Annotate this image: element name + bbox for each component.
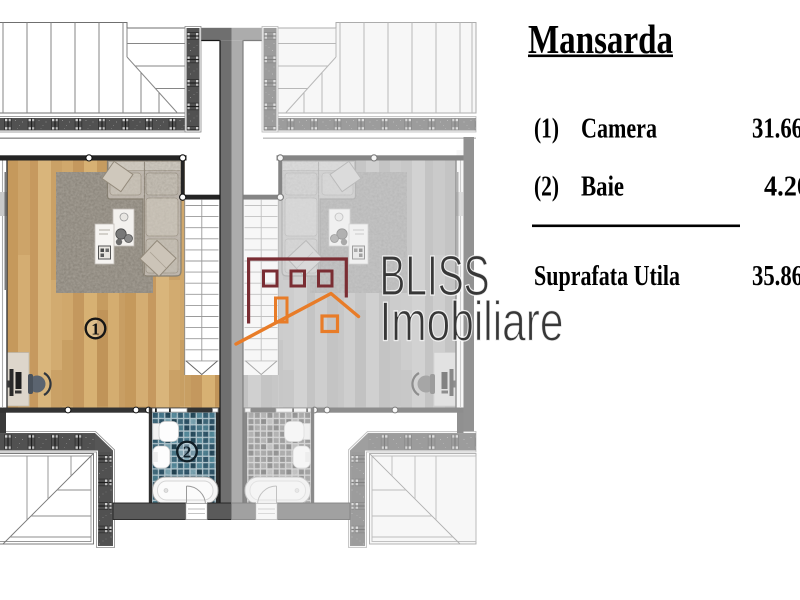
svg-text:35.86: 35.86 — [752, 260, 800, 292]
svg-text:2: 2 — [183, 443, 192, 462]
svg-text:Camera: Camera — [581, 113, 657, 145]
svg-text:Imobiliare: Imobiliare — [380, 290, 564, 353]
svg-text:1: 1 — [91, 320, 100, 339]
svg-text:Suprafata Utila: Suprafata Utila — [534, 260, 680, 292]
svg-text:(2): (2) — [534, 171, 559, 203]
svg-text:(1): (1) — [534, 113, 559, 145]
svg-text:4.20: 4.20 — [764, 171, 800, 203]
svg-text:31.66: 31.66 — [752, 113, 800, 145]
svg-text:Baie: Baie — [581, 171, 624, 203]
